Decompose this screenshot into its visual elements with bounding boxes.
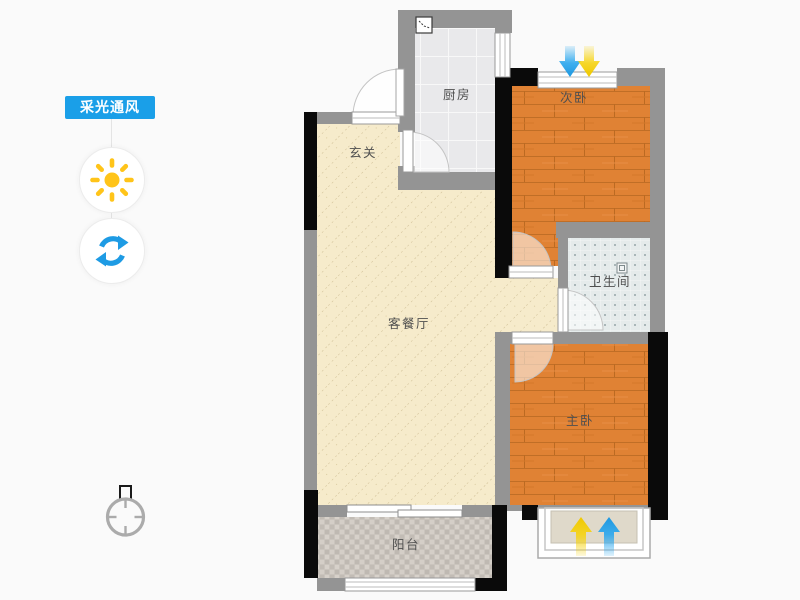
ventilation-button[interactable] — [79, 218, 145, 284]
wall-segment — [495, 77, 512, 278]
wall-segment — [398, 10, 512, 28]
wall-segment — [317, 112, 352, 124]
label-living: 客餐厅 — [388, 316, 430, 331]
wall-segment — [558, 238, 568, 290]
balcony-sliding-door — [347, 505, 462, 517]
master-bay-window — [538, 508, 650, 558]
wall-segment — [398, 172, 495, 190]
wall-segment — [462, 505, 493, 517]
balcony-window — [345, 578, 475, 591]
label-entry: 玄关 — [349, 145, 377, 160]
wall-segment — [317, 578, 345, 591]
wall-segment — [522, 505, 538, 520]
label-bedroom2: 次卧 — [560, 91, 588, 105]
entry-door — [352, 69, 404, 124]
wall-segment — [650, 68, 665, 334]
wall-segment — [304, 230, 317, 492]
bedroom2-window — [538, 72, 617, 88]
wall-segment — [556, 222, 652, 238]
sun-icon — [90, 158, 134, 202]
floor-drain-icon — [617, 263, 627, 273]
wall-segment — [553, 332, 652, 344]
daylight-ventilation-badge: 采光通风 — [65, 96, 155, 119]
daylight-button[interactable] — [79, 147, 145, 213]
wall-segment — [304, 490, 318, 578]
wall-segment — [304, 112, 317, 230]
refresh-icon — [92, 231, 132, 271]
compass-icon — [100, 483, 152, 541]
floorplan-page: 厨房 次卧 玄关 客餐厅 卫生间 主卧 阳台 采光通风 — [0, 0, 800, 600]
wall-segment — [495, 344, 510, 505]
flue-icon — [416, 17, 432, 33]
kitchen-window — [495, 33, 510, 77]
wall-segment — [495, 332, 512, 344]
label-master: 主卧 — [566, 414, 594, 428]
wall-segment — [492, 505, 507, 590]
label-balcony: 阳台 — [392, 537, 420, 552]
wall-segment — [495, 10, 512, 33]
wall-segment — [317, 505, 347, 517]
wall-segment — [475, 578, 507, 591]
label-bathroom: 卫生间 — [589, 275, 631, 289]
label-kitchen: 厨房 — [443, 87, 471, 102]
wall-segment — [648, 332, 668, 520]
